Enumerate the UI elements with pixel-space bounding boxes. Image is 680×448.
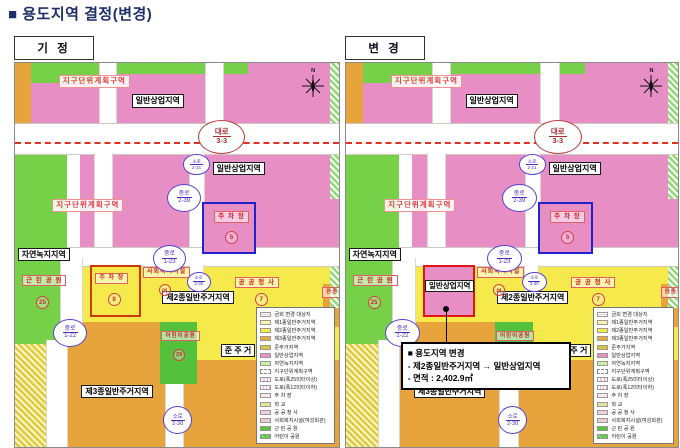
legend-swatch-welfare <box>597 418 608 423</box>
legend-swatch-park <box>597 426 608 431</box>
nature-green-zone-label: 자연녹지지역 <box>349 248 401 261</box>
legend-swatch-office <box>597 410 608 415</box>
buffer-green-label: 완충녹지 <box>661 287 679 297</box>
change-note-line1: ■ 용도지역 변경 <box>408 347 564 360</box>
map-legend: 금회 변경 대상지제1종일반주거지역제2종일반주거지역제3종일반주거지역준주거지… <box>256 307 334 444</box>
legend-label: 학 교 <box>274 401 285 408</box>
public-office-label: 공 공 청 사 <box>235 277 279 288</box>
legend-label: 자연녹지지역 <box>274 360 303 367</box>
legend-label: 금회 변경 대상지 <box>274 311 310 318</box>
commercial-zone-label-mid: 일반상업지역 <box>213 162 265 175</box>
road <box>99 63 117 123</box>
jungro-2-39-road-label-number: 2-39 <box>513 198 525 205</box>
buffer-green-label: 완충녹지 <box>322 287 340 297</box>
legend-swatch-school <box>597 402 608 407</box>
parking-lot-5-label: 주 차 장 <box>550 211 585 222</box>
legend-item: 학 교 <box>597 401 669 408</box>
jungro-1-22-road-label-type: 중로 <box>63 326 78 334</box>
change-note-line3: - 면적 : 2,402.9㎡ <box>408 372 564 385</box>
legend-swatch-welfare <box>260 418 271 423</box>
legend-label: 제3종일반주거지역 <box>611 335 652 342</box>
neighborhood-park-number: 25 <box>368 296 381 309</box>
change-note-line2: - 제2종일반주거지역 → 일반상업지역 <box>408 360 564 373</box>
soro-2-30-road-label-number: 2-30 <box>172 421 183 427</box>
page-title: ■ 용도지역 결정(변경) <box>8 3 152 24</box>
legend-swatch-com <box>597 353 608 358</box>
commercial-zone-label-top: 일반상업지역 <box>466 94 518 107</box>
change-leader-line <box>446 311 447 342</box>
welfare-facility-mark: 여 <box>159 284 171 296</box>
children-park-label: 어린이공원 <box>496 331 534 341</box>
residential2-zone-label: 제2종일반주거지역 <box>497 291 568 304</box>
daero-centerline <box>346 142 678 144</box>
parking-lot-5-parcel <box>202 202 256 254</box>
legend-swatch-parking <box>260 393 271 398</box>
legend-item: 주 차 장 <box>260 392 330 399</box>
panel-tag-changed: 변 경 <box>345 36 425 60</box>
legend-item: 준주거지역 <box>597 344 669 351</box>
legend-label: 제2종일반주거지역 <box>611 327 652 334</box>
legend-item: 어린이 공원 <box>597 433 669 440</box>
legend-label: 도로(폭25미터이상) <box>611 376 654 383</box>
panel-changed: 변 경 지구단위계획구역일반상업지역일반상업지역지구단위계획구역주 차 장자연녹… <box>345 62 679 448</box>
road <box>346 123 678 156</box>
legend-label: 지구단위계획구역 <box>611 368 649 375</box>
legend-swatch-nat <box>597 361 608 366</box>
district-plan-label-top: 지구단위계획구역 <box>391 75 462 88</box>
road <box>432 63 451 123</box>
legend-item: 공 공 청 사 <box>597 409 669 416</box>
legend-swatch-r2 <box>260 328 271 333</box>
commercial-zone-label-top: 일반상업지역 <box>132 94 184 107</box>
legend-item: 도로(폭25미터이상) <box>597 376 669 383</box>
legend-label: 자연녹지지역 <box>611 360 640 367</box>
jungro-1-23-road-label-number: 1-23 <box>498 259 510 266</box>
legend-swatch-semi <box>597 345 608 350</box>
soro-3-30-road-label: 소로3-30 <box>522 272 547 292</box>
legend-label: 어린이 공원 <box>274 433 299 440</box>
soro-3-30-road-label-number: 3-30 <box>194 282 203 287</box>
public-office-number: 7 <box>255 293 268 306</box>
legend-item: 사회복지시설(여성회관) <box>597 417 669 424</box>
soro-2-21-road-label: 소로2-21 <box>183 154 209 174</box>
zone-hatchg <box>668 63 678 123</box>
legend-item: 금회 변경 대상지 <box>597 311 669 318</box>
nature-green-zone-label: 자연녹지지역 <box>18 248 70 261</box>
legend-item: 지구단위계획구역 <box>597 368 669 375</box>
legend-item: 자연녹지지역 <box>260 360 330 367</box>
legend-swatch-r3 <box>597 336 608 341</box>
legend-item: 일반상업지역 <box>260 352 330 359</box>
zone-hatchg <box>668 153 678 199</box>
jungro-2-39-road-label-number: 2-39 <box>178 198 190 205</box>
soro-2-30-road-label-number: 2-30 <box>507 421 518 427</box>
legend-item: 일반상업지역 <box>597 352 669 359</box>
legend-label: 제3종일반주거지역 <box>274 335 315 342</box>
zone-hatchg <box>330 63 339 123</box>
parking-lot-8-label: 주 차 장 <box>95 273 128 284</box>
residential2-zone-label: 제2종일반주거지역 <box>162 291 233 304</box>
zone-hatchy <box>15 344 46 447</box>
legend-label: 제1종일반주거지역 <box>611 319 652 326</box>
commercial-zone-label-mid: 일반상업지역 <box>549 162 601 175</box>
legend-swatch-r1 <box>260 320 271 325</box>
legend-label: 주 차 장 <box>274 392 291 399</box>
legend-label: 제2종일반주거지역 <box>274 327 315 334</box>
legend-item: 근 린 공 원 <box>597 425 669 432</box>
map-existing: 지구단위계획구역일반상업지역일반상업지역지구단위계획구역주 차 장자연녹지지역근… <box>14 62 340 448</box>
panel-existing: 기 정 지구단위계획구역일반상업지역일반상업지역지구단위계획구역주 차 장자연녹… <box>14 62 340 448</box>
legend-swatch-road2 <box>597 385 608 390</box>
legend-swatch-r1 <box>597 320 608 325</box>
jungro-1-22-road-label-number: 1-22 <box>64 333 76 340</box>
legend-label: 사회복지시설(여성회관) <box>611 417 662 424</box>
neighborhood-park-label: 근 린 공 원 <box>22 275 66 286</box>
legend-label: 도로(폭12미터이하) <box>274 384 317 391</box>
legend-swatch-cpark <box>597 434 608 439</box>
legend-label: 제1종일반주거지역 <box>274 319 315 326</box>
legend-swatch-semi <box>260 345 271 350</box>
page: ■ 용도지역 결정(변경) 기 정 지구단위계획구역일반상업지역일반상업지역지구… <box>0 0 680 448</box>
legend-swatch-r2 <box>597 328 608 333</box>
jungro-2-39-road-label: 중로2-39 <box>167 184 201 212</box>
legend-item: 자연녹지지역 <box>597 360 669 367</box>
changed-commercial-label: 일반상업지역 <box>425 280 474 293</box>
legend-item: 근 린 공 원 <box>260 425 330 432</box>
change-note: ■ 용도지역 변경- 제2종일반주거지역 → 일반상업지역- 면적 : 2,40… <box>401 342 571 390</box>
road <box>205 63 225 123</box>
zone-hatchy <box>346 344 378 447</box>
legend-label: 금회 변경 대상지 <box>611 311 647 318</box>
legend-label: 일반상업지역 <box>274 352 303 359</box>
legend-swatch-park <box>260 426 271 431</box>
legend-label: 준주거지역 <box>274 344 298 351</box>
daero-road-label-number: 3-3 <box>552 137 563 145</box>
legend-item: 지구단위계획구역 <box>260 368 330 375</box>
legend-item: 사회복지시설(여성회관) <box>260 417 330 424</box>
legend-label: 준주거지역 <box>611 344 635 351</box>
legend-item: 도로(폭25미터이상) <box>260 376 330 383</box>
jungro-1-23-road-label: 중로1-23 <box>153 245 187 272</box>
jungro-1-23-road-label-type: 중로 <box>162 251 177 259</box>
road <box>15 123 339 156</box>
legend-swatch-office <box>260 410 271 415</box>
soro-2-30-road-label-type: 소로 <box>506 414 520 421</box>
public-office-number: 7 <box>592 293 605 306</box>
residential3-zone-label: 제3종일반주거지역 <box>81 385 152 398</box>
compass-star-icon <box>302 75 324 97</box>
legend-item: 어린이 공원 <box>260 433 330 440</box>
district-plan-label-mid: 지구단위계획구역 <box>52 199 123 212</box>
children-park-label: 어린이공원 <box>161 331 199 341</box>
soro-3-30-road-label: 소로3-30 <box>187 272 211 292</box>
zone-hatchg <box>330 153 339 199</box>
legend-label: 사회복지시설(여성회관) <box>274 417 325 424</box>
road <box>46 340 68 447</box>
legend-item: 제3종일반주거지역 <box>260 335 330 342</box>
legend-label: 도로(폭25미터이상) <box>274 376 317 383</box>
daero-centerline <box>15 142 339 144</box>
panel-tag-existing: 기 정 <box>14 36 94 60</box>
jungro-2-39-road-label-type: 중로 <box>177 191 192 199</box>
map-changed: 지구단위계획구역일반상업지역일반상업지역지구단위계획구역주 차 장자연녹지지역근… <box>345 62 679 448</box>
legend-item: 금회 변경 대상지 <box>260 311 330 318</box>
daero-road-label: 대로3-3 <box>534 120 582 154</box>
legend-label: 주 차 장 <box>611 392 628 399</box>
legend-item: 주 차 장 <box>597 392 669 399</box>
legend-item: 제1종일반주거지역 <box>260 319 330 326</box>
legend-swatch-road2 <box>260 385 271 390</box>
district-plan-label-mid: 지구단위계획구역 <box>384 199 455 212</box>
legend-swatch-target <box>597 312 608 317</box>
public-office-label: 공 공 청 사 <box>571 277 615 288</box>
compass-star-icon <box>640 75 662 97</box>
soro-3-30-road-label-number: 3-30 <box>530 282 539 287</box>
legend-swatch-district <box>260 369 271 374</box>
jungro-1-23-road-label-type: 중로 <box>497 251 512 259</box>
legend-item: 제3종일반주거지역 <box>597 335 669 342</box>
legend-item: 제2종일반주거지역 <box>597 327 669 334</box>
legend-swatch-r3 <box>260 336 271 341</box>
soro-2-21-road-label: 소로2-21 <box>519 154 546 174</box>
legend-label: 근 린 공 원 <box>274 425 297 432</box>
parking-lot-5-label: 주 차 장 <box>214 211 249 222</box>
road <box>540 63 560 123</box>
legend-label: 어린이 공원 <box>611 433 636 440</box>
legend-label: 도로(폭12미터이하) <box>611 384 654 391</box>
semi-residential-zone-label: 준 주 거 <box>221 344 256 357</box>
jungro-1-22-road-label-number: 1-22 <box>396 333 408 340</box>
legend-label: 일반상업지역 <box>611 352 640 359</box>
legend-label: 학 교 <box>611 401 622 408</box>
soro-2-21-road-label-number: 2-21 <box>192 165 201 170</box>
zone-grn <box>432 63 585 74</box>
legend-label: 지구단위계획구역 <box>274 368 312 375</box>
jungro-2-39-road-label: 중로2-39 <box>502 184 537 212</box>
daero-road-label-number: 3-3 <box>216 137 227 145</box>
neighborhood-park-label: 근 린 공 원 <box>353 275 397 286</box>
legend-swatch-cpark <box>260 434 271 439</box>
jungro-1-23-road-label-number: 1-23 <box>164 259 176 266</box>
legend-item: 공 공 청 사 <box>260 409 330 416</box>
map-legend: 금회 변경 대상지제1종일반주거지역제2종일반주거지역제3종일반주거지역준주거지… <box>593 307 673 444</box>
legend-swatch-nat <box>260 361 271 366</box>
legend-label: 근 린 공 원 <box>611 425 634 432</box>
legend-swatch-parking <box>597 393 608 398</box>
legend-label: 공 공 청 사 <box>274 409 297 416</box>
parking-lot-5-parcel <box>538 202 593 254</box>
legend-swatch-district <box>597 369 608 374</box>
legend-item: 제2종일반주거지역 <box>260 327 330 334</box>
road <box>378 340 401 447</box>
north-arrow-icon: N <box>637 69 667 102</box>
legend-item: 도로(폭12미터이하) <box>260 384 330 391</box>
soro-2-30-road-label-type: 소로 <box>171 414 185 421</box>
legend-item: 학 교 <box>260 401 330 408</box>
legend-swatch-school <box>260 402 271 407</box>
jungro-1-22-road-label-type: 중로 <box>395 326 410 334</box>
parking-lot-8-number: 8 <box>108 293 121 306</box>
legend-swatch-com <box>260 353 271 358</box>
jungro-2-39-road-label-type: 중로 <box>512 191 527 199</box>
legend-label: 공 공 청 사 <box>611 409 634 416</box>
zone-grn <box>99 63 248 74</box>
district-plan-label-top: 지구단위계획구역 <box>59 75 130 88</box>
neighborhood-park-number: 25 <box>36 296 49 309</box>
north-arrow-icon: N <box>299 69 328 102</box>
legend-item: 준주거지역 <box>260 344 330 351</box>
jungro-1-23-road-label: 중로1-23 <box>487 245 522 272</box>
legend-item: 도로(폭12미터이하) <box>597 384 669 391</box>
legend-swatch-target <box>260 312 271 317</box>
legend-item: 제1종일반주거지역 <box>597 319 669 326</box>
soro-2-21-road-label-number: 2-21 <box>527 165 536 170</box>
jungro-1-22-road-label: 중로1-22 <box>53 319 87 347</box>
legend-swatch-road1 <box>260 377 271 382</box>
legend-swatch-road1 <box>597 377 608 382</box>
